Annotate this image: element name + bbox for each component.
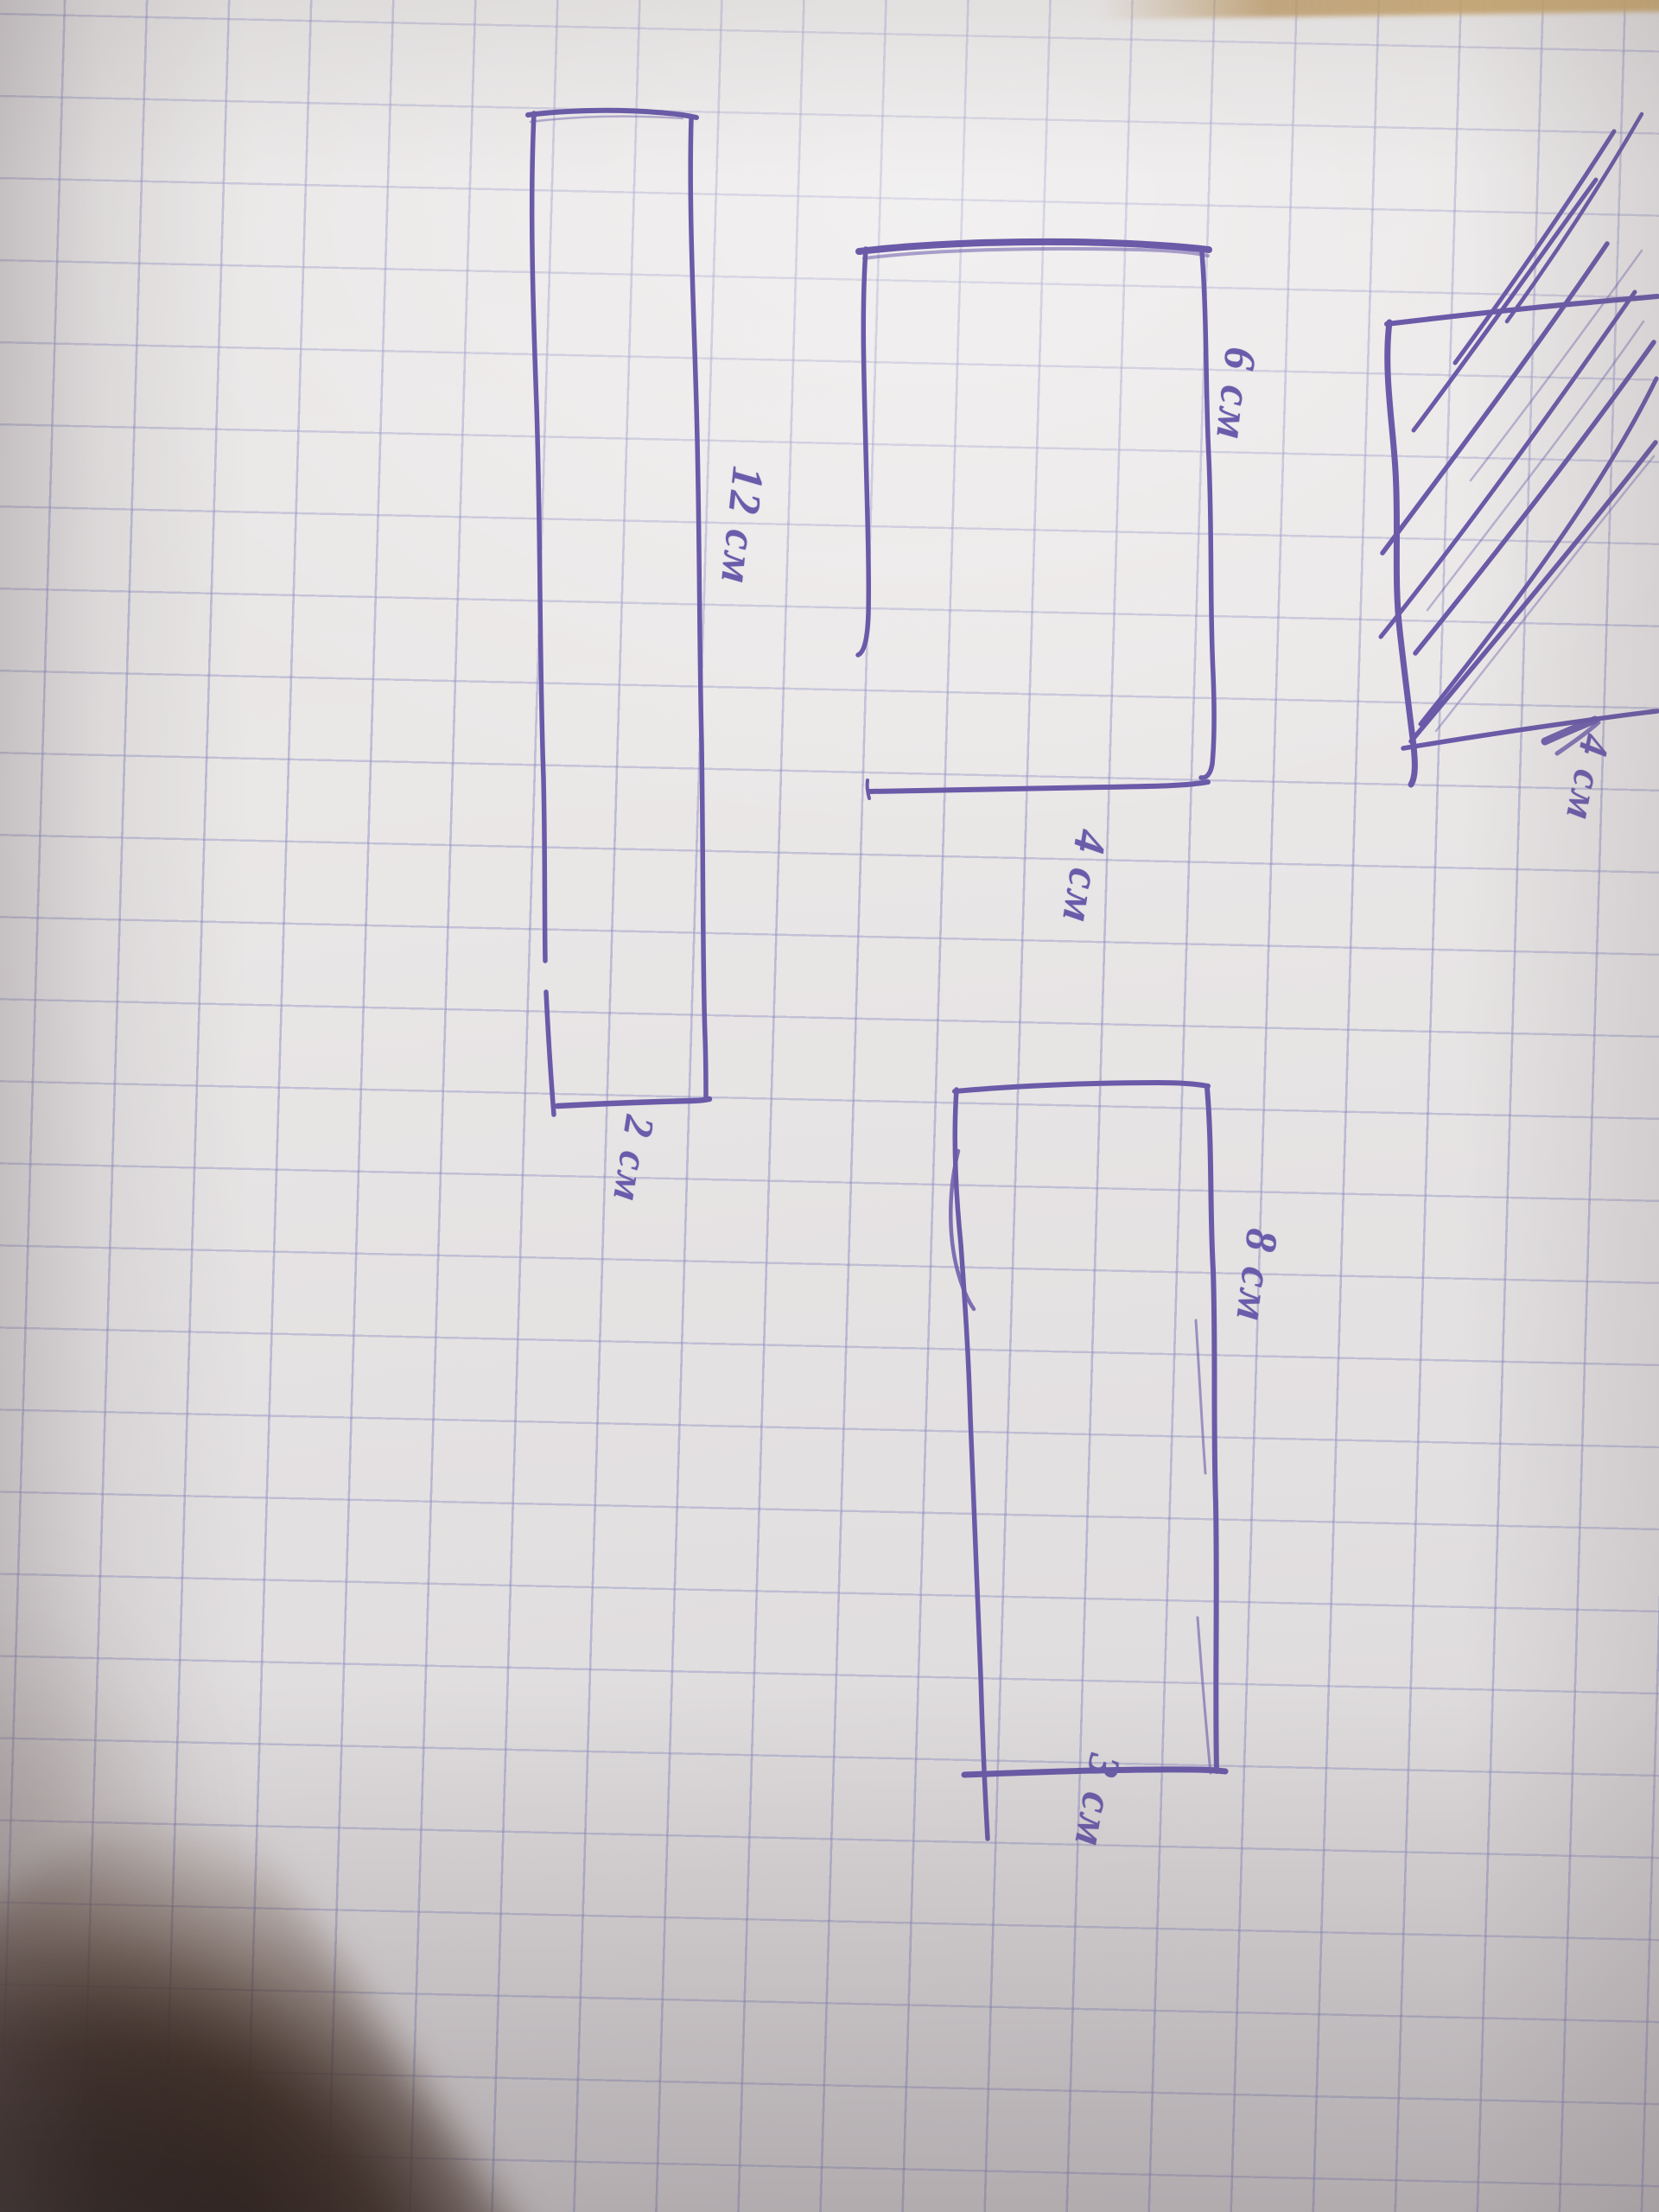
rectangle-2x12	[528, 111, 709, 1115]
dimension-label-6cm: 6 см	[1205, 345, 1266, 444]
hatch-lines	[1381, 114, 1656, 753]
rectangle-3x8	[950, 1083, 1225, 1839]
notebook-page-photo: 6 см 4 см 12 см 2 см 8 см 3 см 4 см	[0, 0, 1659, 2212]
rectangle-4x6	[858, 242, 1214, 798]
hatched-square	[1381, 114, 1657, 785]
